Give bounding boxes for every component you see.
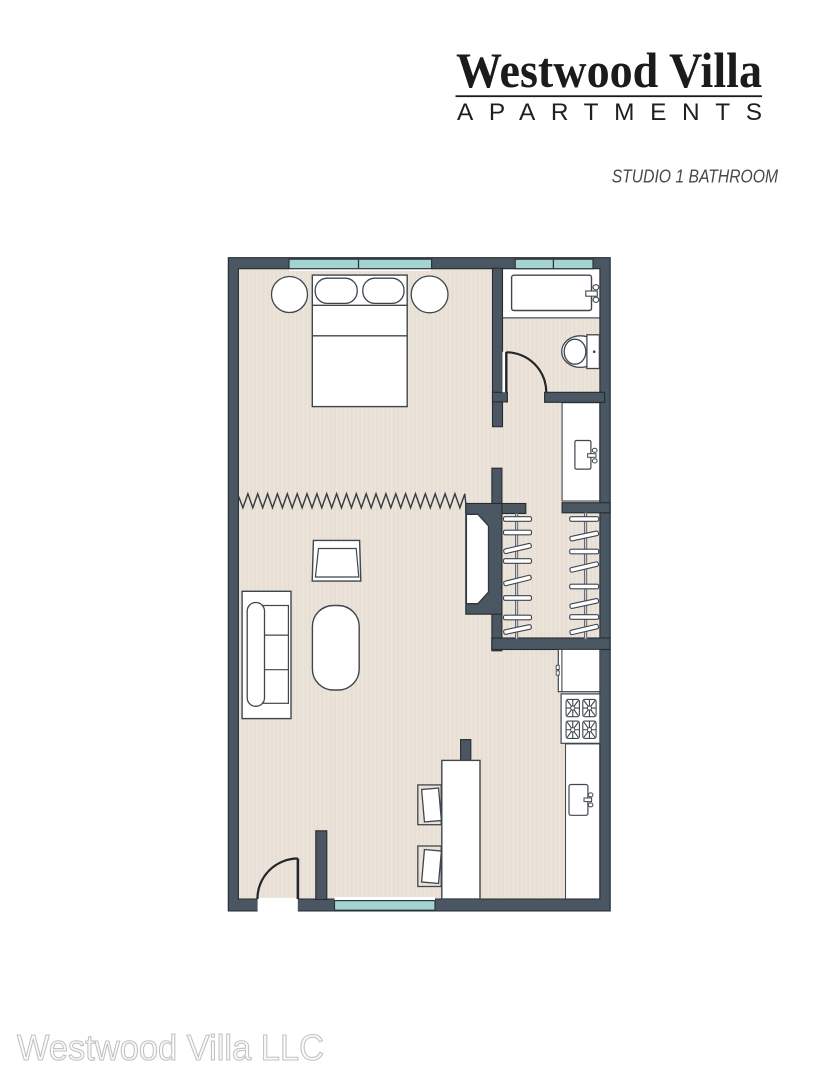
- svg-text:STUDIO 1 BATHROOM: STUDIO 1 BATHROOM: [612, 167, 778, 187]
- svg-text:Westwood Villa: Westwood Villa: [456, 43, 762, 98]
- svg-text:Westwood Villa LLC: Westwood Villa LLC: [17, 1028, 324, 1068]
- svg-text:APARTMENTS: APARTMENTS: [457, 99, 762, 126]
